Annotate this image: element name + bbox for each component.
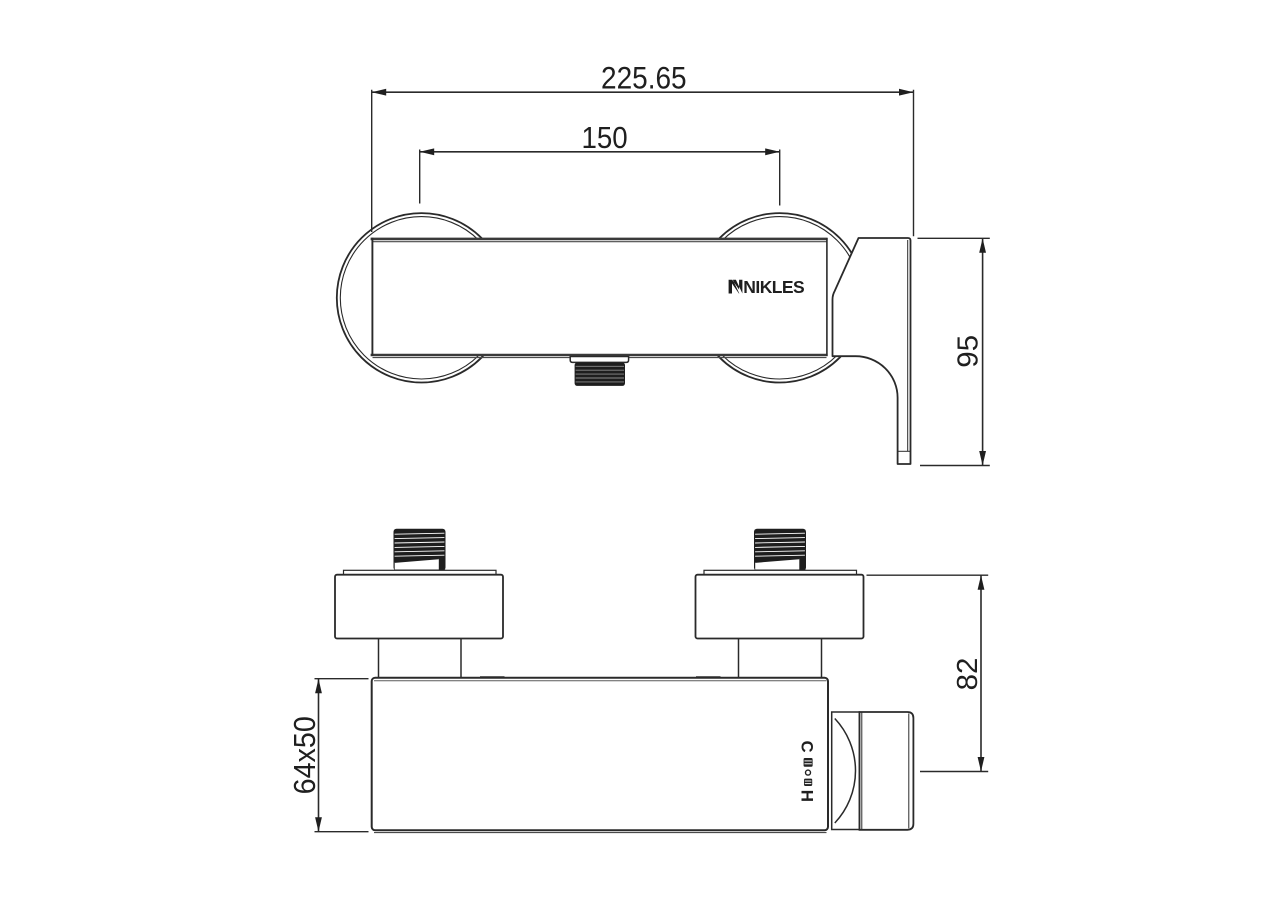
svg-text:64x50: 64x50 xyxy=(287,716,322,794)
svg-text:95: 95 xyxy=(952,335,984,368)
svg-text:150: 150 xyxy=(582,121,628,155)
svg-text:NIKLES: NIKLES xyxy=(743,277,804,297)
svg-text:82: 82 xyxy=(952,658,984,691)
svg-text:225.65: 225.65 xyxy=(601,59,687,95)
svg-text:H: H xyxy=(798,790,817,802)
svg-text:C: C xyxy=(798,741,816,753)
